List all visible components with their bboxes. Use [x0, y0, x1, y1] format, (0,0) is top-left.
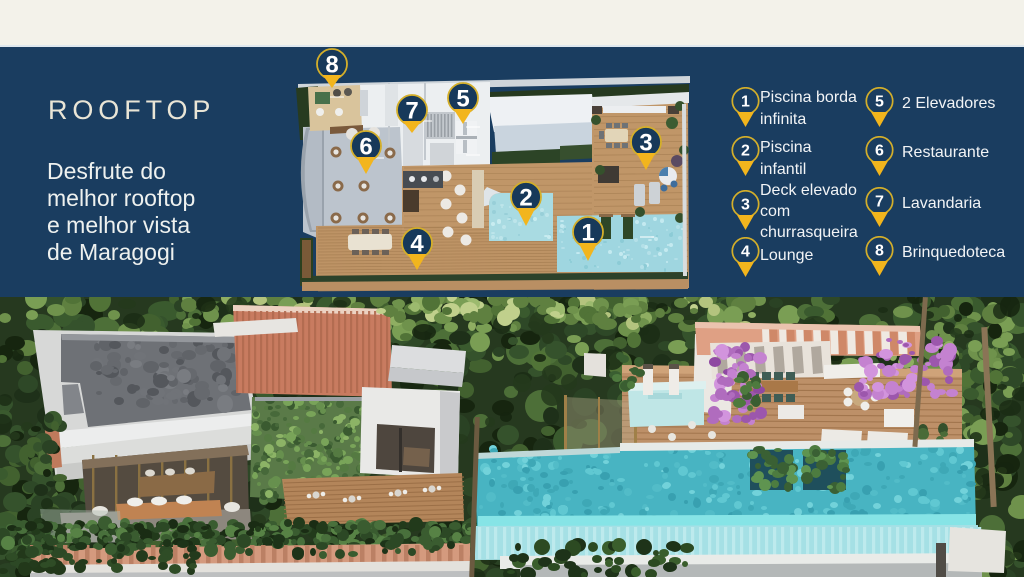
svg-text:4: 4 [741, 244, 750, 261]
svg-text:5: 5 [456, 86, 469, 113]
svg-text:3: 3 [639, 130, 652, 157]
svg-text:3: 3 [741, 197, 750, 214]
svg-text:6: 6 [875, 143, 884, 160]
svg-text:8: 8 [325, 52, 338, 79]
svg-text:5: 5 [875, 94, 884, 111]
svg-text:2: 2 [519, 185, 532, 212]
svg-text:1: 1 [741, 94, 750, 111]
svg-text:7: 7 [875, 194, 884, 211]
svg-text:8: 8 [875, 243, 884, 260]
svg-text:4: 4 [410, 231, 424, 258]
svg-text:1: 1 [581, 220, 594, 247]
svg-text:2: 2 [741, 143, 750, 160]
svg-text:6: 6 [359, 134, 372, 161]
svg-text:7: 7 [405, 98, 418, 125]
